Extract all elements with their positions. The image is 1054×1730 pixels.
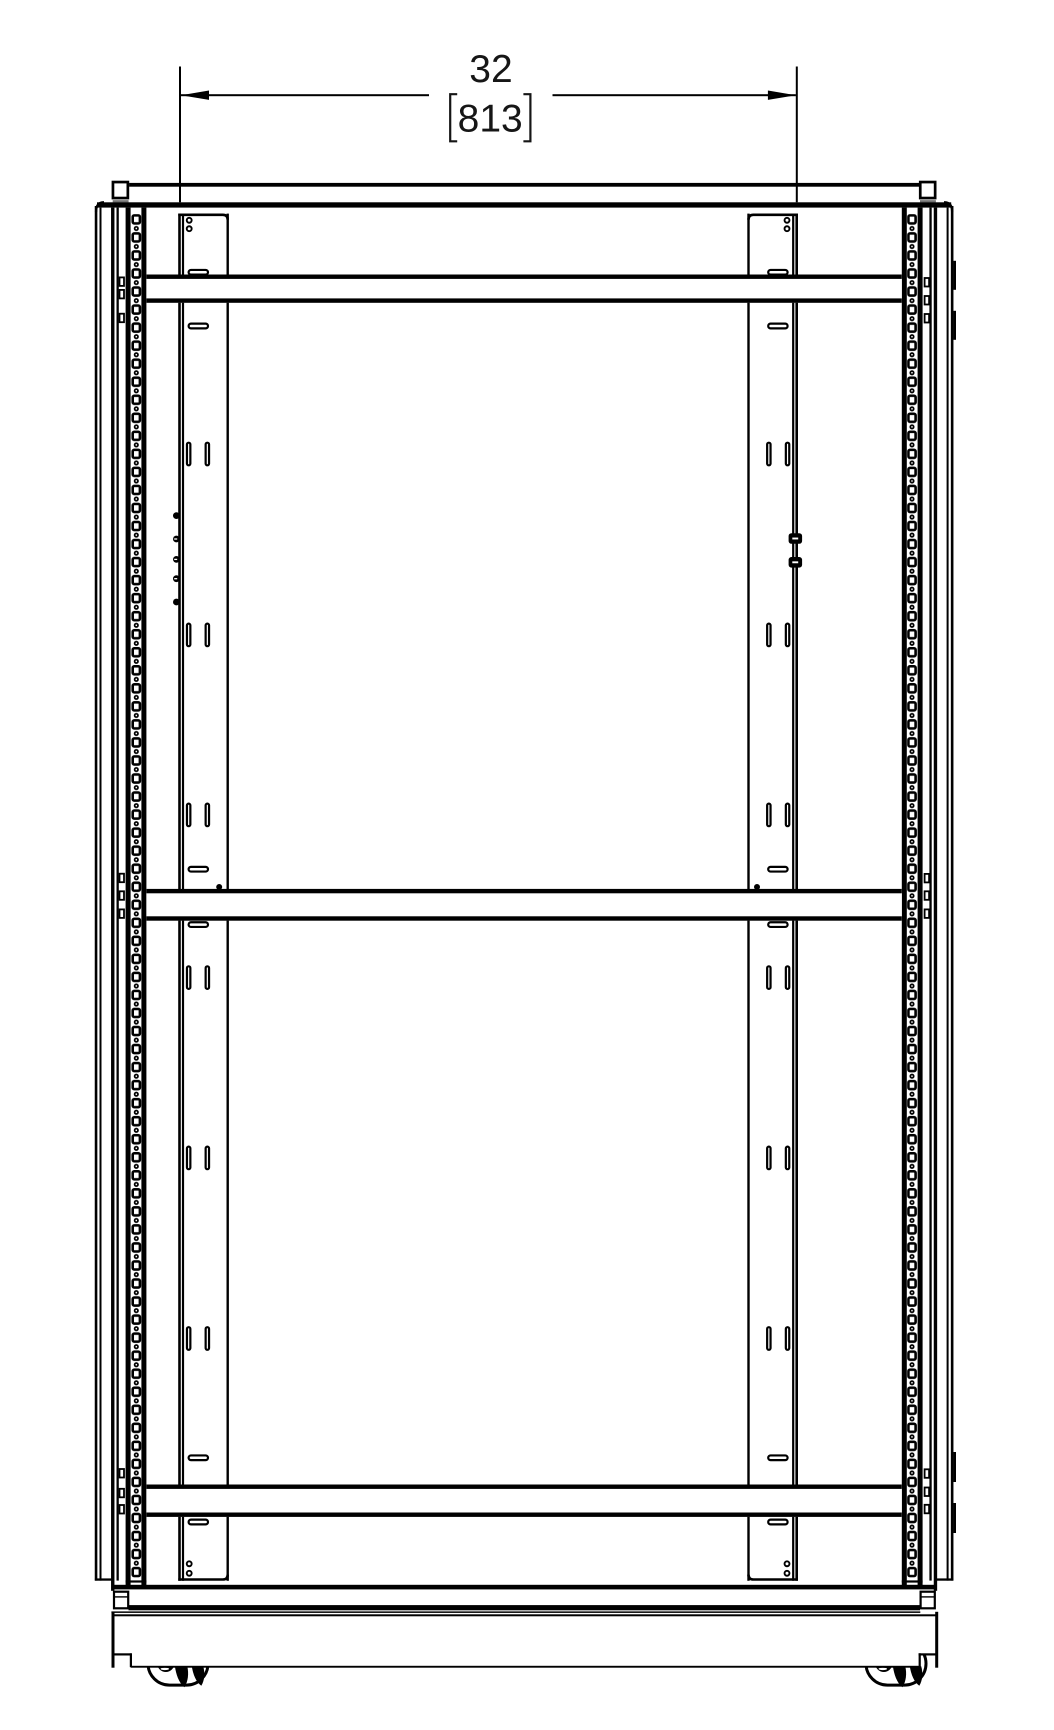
svg-text:32: 32 — [469, 48, 512, 91]
svg-text:813: 813 — [458, 98, 523, 141]
